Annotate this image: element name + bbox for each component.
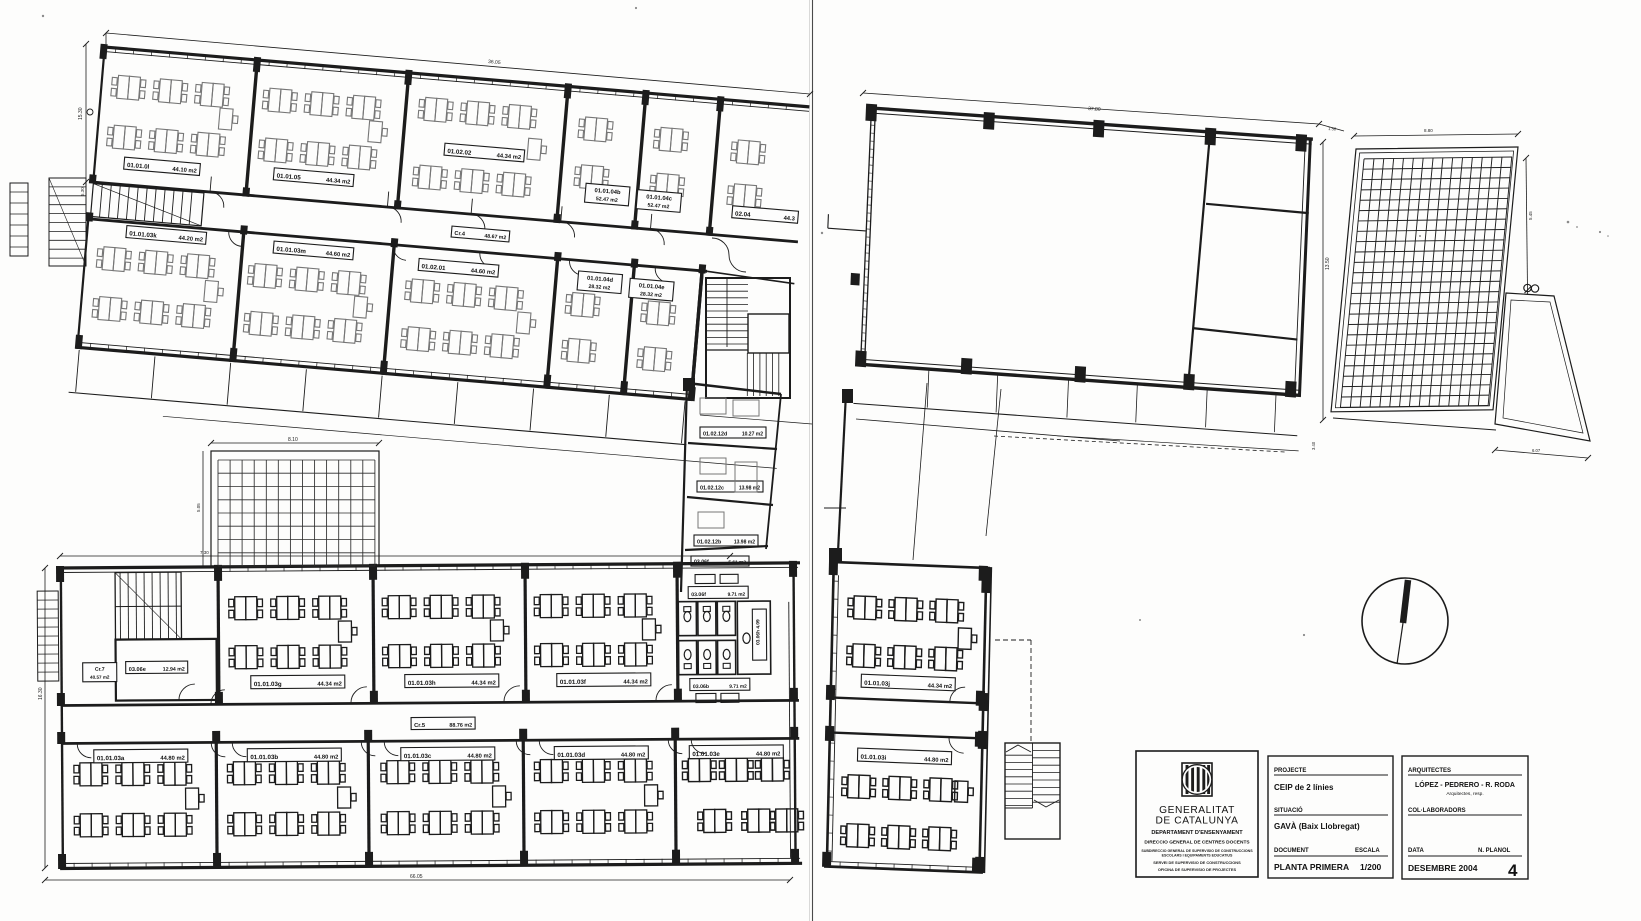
svg-text:7.30: 7.30 [200,550,209,555]
svg-text:ESCALA: ESCALA [1355,848,1380,854]
svg-text:8.10: 8.10 [288,437,298,443]
svg-text:GENERALITAT: GENERALITAT [1159,805,1235,816]
svg-text:44.80 m2: 44.80 m2 [924,757,949,764]
svg-text:10.27 m2: 10.27 m2 [742,432,763,438]
svg-text:01.01.03f: 01.01.03f [560,679,587,686]
svg-text:PLANTA PRIMERA: PLANTA PRIMERA [1274,862,1349,872]
svg-text:COL·LABORADORS: COL·LABORADORS [1408,808,1466,814]
svg-text:01.01.03e: 01.01.03e [692,751,720,758]
svg-text:ESCOLARS I EQUIPAMENTS EDUCATI: ESCOLARS I EQUIPAMENTS EDUCATIUS [1162,854,1233,858]
svg-text:16.30: 16.30 [38,687,44,700]
svg-text:DE CATALUNYA: DE CATALUNYA [1155,816,1238,827]
svg-text:01.02.12c: 01.02.12c [700,486,724,492]
svg-text:DATA: DATA [1408,848,1424,854]
svg-text:44.34 m2: 44.34 m2 [317,682,342,688]
svg-text:01.02.12b: 01.02.12b [697,540,722,546]
svg-text:44.80 m2: 44.80 m2 [314,755,339,761]
svg-text:SUBDIRECCIO GENERAL DE SUPERVI: SUBDIRECCIO GENERAL DE SUPERVISIO DE CON… [1141,849,1253,853]
svg-text:44.34 m2: 44.34 m2 [928,683,953,690]
svg-text:44.80 m2: 44.80 m2 [621,752,646,758]
svg-text:CEIP de 2 línies: CEIP de 2 línies [1274,783,1334,792]
svg-text:03.06h 4.09: 03.06h 4.09 [755,619,761,645]
svg-text:15.30: 15.30 [78,107,84,120]
svg-text:Cr.4: Cr.4 [454,231,466,238]
svg-text:9.71 m2: 9.71 m2 [729,684,747,690]
svg-text:01.01.03g: 01.01.03g [254,681,282,688]
svg-text:DOCUMENT: DOCUMENT [1274,848,1309,854]
svg-text:PROJECTE: PROJECTE [1274,768,1306,774]
svg-text:01.01.03b: 01.01.03b [250,754,278,761]
svg-text:SITUACIÓ: SITUACIÓ [1274,806,1303,814]
svg-text:5.05: 5.05 [196,503,201,512]
svg-text:3.40: 3.40 [1311,441,1316,450]
svg-text:44.3: 44.3 [783,216,796,223]
svg-text:5.45: 5.45 [1528,211,1533,220]
svg-text:OFICINA DE SUPERVISIO DE PROJE: OFICINA DE SUPERVISIO DE PROJECTES [1158,867,1237,872]
svg-text:01.01.03a: 01.01.03a [97,755,125,762]
svg-text:01.02.12d: 01.02.12d [703,432,727,438]
svg-text:8.80: 8.80 [1424,128,1433,133]
svg-text:44.80 m2: 44.80 m2 [756,751,781,757]
svg-text:03.06f: 03.06f [691,592,706,598]
svg-text:Cr.7: Cr.7 [95,667,105,673]
svg-text:36.05: 36.05 [488,59,501,66]
svg-text:01.01.03d: 01.01.03d [557,752,585,759]
svg-text:ARQUITECTES: ARQUITECTES [1408,768,1451,774]
svg-text:DESEMBRE 2004: DESEMBRE 2004 [1408,863,1478,873]
svg-text:37.80: 37.80 [1088,106,1101,113]
svg-text:4: 4 [1508,861,1518,880]
svg-text:13.98 m2: 13.98 m2 [734,540,755,546]
svg-text:N. PLANOL: N. PLANOL [1478,848,1511,854]
svg-text:1/200: 1/200 [1360,862,1382,872]
svg-text:40.57 m2: 40.57 m2 [90,675,110,680]
svg-text:44.80 m2: 44.80 m2 [467,753,492,759]
svg-text:01.01.03c: 01.01.03c [404,753,432,760]
svg-text:Arquitectes, resp.: Arquitectes, resp. [1446,791,1483,797]
svg-text:5.30: 5.30 [80,187,85,196]
svg-text:6.07: 6.07 [1532,448,1541,453]
svg-text:GAVÀ (Baix Llobregat): GAVÀ (Baix Llobregat) [1274,822,1360,831]
svg-text:9.71 m2: 9.71 m2 [728,592,746,598]
svg-text:03.06b: 03.06b [693,684,709,690]
svg-text:44.34 m2: 44.34 m2 [471,680,496,686]
svg-text:44.80 m2: 44.80 m2 [160,756,185,762]
svg-text:Cr.5: Cr.5 [414,723,426,729]
svg-text:01.01.03i: 01.01.03i [860,754,886,762]
svg-text:13.50: 13.50 [1325,257,1331,270]
svg-text:01.01.03j: 01.01.03j [864,680,890,688]
svg-text:44.34 m2: 44.34 m2 [623,679,648,685]
svg-text:LÓPEZ - PEDRERO - R. RODA: LÓPEZ - PEDRERO - R. RODA [1415,780,1515,789]
svg-text:1.50: 1.50 [1328,126,1337,132]
svg-text:DEPARTAMENT D'ENSENYAMENT: DEPARTAMENT D'ENSENYAMENT [1151,830,1243,836]
svg-text:03.06e: 03.06e [129,667,146,673]
svg-text:01.01.03h: 01.01.03h [408,680,436,687]
svg-text:SERVEI DE SUPERVISIO DE CONSTR: SERVEI DE SUPERVISIO DE CONSTRUCCIONS [1153,860,1241,865]
svg-text:DIRECCIO GENERAL DE CENTRES DO: DIRECCIO GENERAL DE CENTRES DOCENTS [1144,840,1250,846]
svg-text:02.04: 02.04 [735,210,752,218]
svg-text:88.76 m2: 88.76 m2 [449,723,472,729]
svg-text:66.05: 66.05 [410,874,423,880]
svg-text:12.94 m2: 12.94 m2 [163,667,185,673]
